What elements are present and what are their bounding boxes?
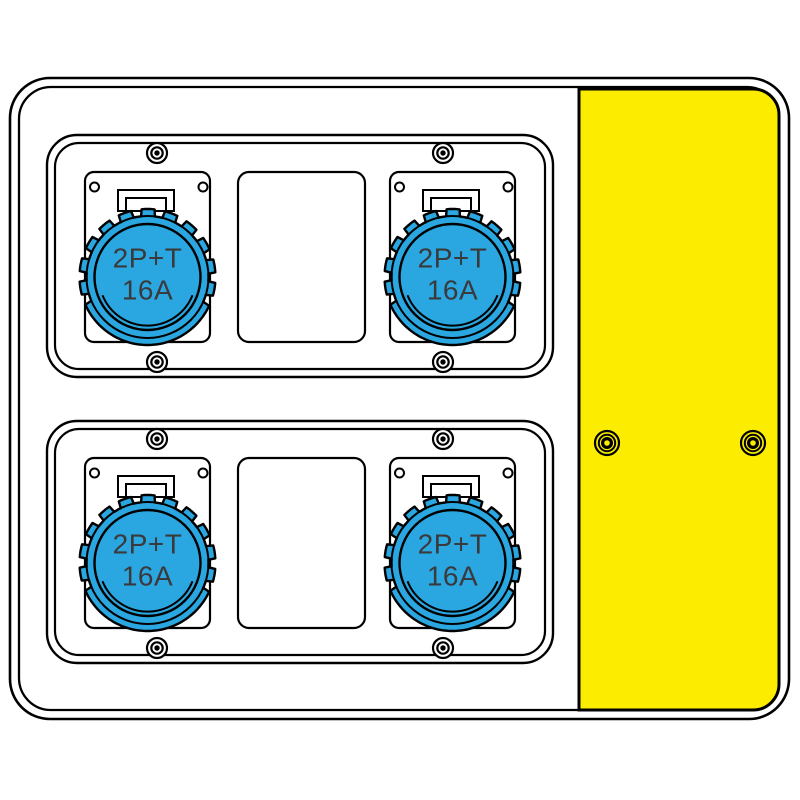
- socket-rating-line1: 2P+T: [418, 529, 488, 560]
- socket-rating-line1: 2P+T: [113, 529, 183, 560]
- socket-rating-line1: 2P+T: [418, 243, 488, 274]
- plate-screw-hole-icon: [199, 469, 208, 478]
- blank-module-cover: [238, 172, 365, 342]
- panel-screw-icon: [147, 429, 167, 449]
- socket-rating-line1: 2P+T: [113, 243, 183, 274]
- side-cover-plate: [579, 89, 779, 710]
- panel-screw-icon: [147, 143, 167, 163]
- panel-screw-icon: [147, 352, 167, 372]
- drawing-stage: 2P+T16A 2P+T16A 2P+T16A 2P+T16A: [0, 0, 800, 800]
- side-cover: [579, 89, 779, 710]
- panel-screw-icon: [433, 352, 453, 372]
- blank-module-cover: [238, 458, 365, 628]
- plate-screw-hole-icon: [395, 183, 404, 192]
- plate-screw-hole-icon: [395, 469, 404, 478]
- socket-rating-line2: 16A: [122, 275, 173, 306]
- distribution-box-drawing: 2P+T16A 2P+T16A 2P+T16A 2P+T16A: [0, 0, 800, 800]
- plate-screw-hole-icon: [504, 183, 513, 192]
- plate-screw-hole-icon: [199, 183, 208, 192]
- plate-screw-hole-icon: [504, 469, 513, 478]
- socket-rating-line2: 16A: [427, 275, 478, 306]
- cee-socket: 2P+T16A: [80, 172, 216, 345]
- socket-panel-top: 2P+T16A 2P+T16A: [47, 135, 553, 377]
- cee-socket: 2P+T16A: [385, 458, 521, 631]
- panel-screw-icon: [147, 638, 167, 658]
- plate-screw-hole-icon: [90, 469, 99, 478]
- socket-rating-line2: 16A: [427, 561, 478, 592]
- socket-panel-bottom: 2P+T16A 2P+T16A: [47, 421, 553, 663]
- panel-screw-icon: [433, 143, 453, 163]
- plate-screw-hole-icon: [90, 183, 99, 192]
- socket-rating-line2: 16A: [122, 561, 173, 592]
- panel-screw-icon: [433, 429, 453, 449]
- panel-screw-icon: [433, 638, 453, 658]
- cee-socket: 2P+T16A: [385, 172, 521, 345]
- cee-socket: 2P+T16A: [80, 458, 216, 631]
